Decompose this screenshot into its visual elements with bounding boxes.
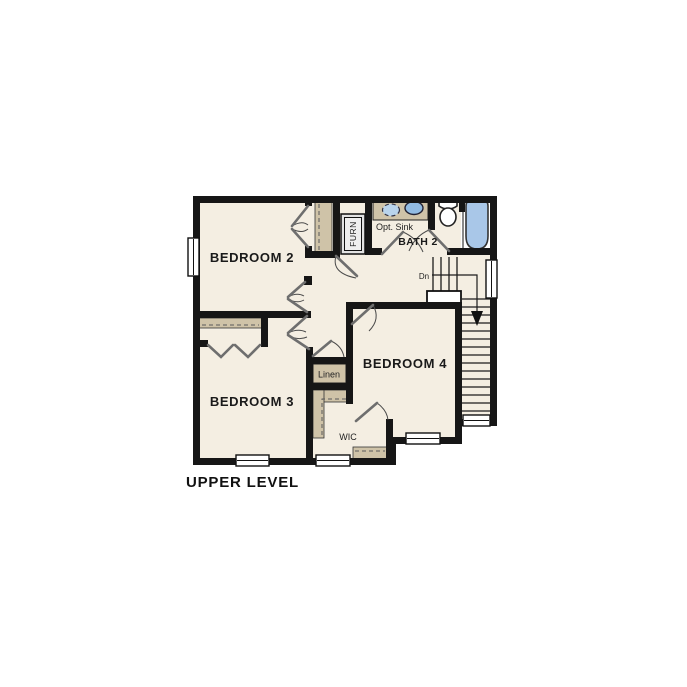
stairwell-window — [486, 260, 497, 298]
bedroom2-window — [188, 238, 199, 276]
floor-plan-page: FURN BEDROOM 2 BEDROOM 3 BEDROOM 4 BATH … — [0, 0, 687, 687]
bedroom4-window — [406, 433, 440, 444]
linen-label: Linen — [318, 370, 340, 380]
dn-label: Dn — [419, 272, 429, 281]
stair-bottom-window — [463, 415, 490, 426]
bedroom3-label: BEDROOM 3 — [210, 394, 294, 409]
wic-window — [316, 455, 350, 466]
wic-label: WIC — [339, 432, 357, 442]
bedroom3-window — [236, 455, 269, 466]
bath2-label: BATH 2 — [398, 236, 438, 248]
furnace-label: FURN — [348, 221, 358, 247]
optional-sink-icon — [383, 204, 400, 216]
chase-closet — [315, 202, 332, 252]
opt-sink-label: Opt. Sink — [376, 222, 414, 232]
bedroom2-label: BEDROOM 2 — [210, 250, 294, 265]
page-title: UPPER LEVEL — [186, 474, 299, 491]
furnace-unit: FURN — [341, 214, 365, 254]
bathtub-icon — [466, 201, 488, 249]
bedroom3-closet-shelf — [199, 318, 262, 328]
floor-plan-svg: FURN BEDROOM 2 BEDROOM 3 BEDROOM 4 BATH … — [0, 0, 687, 687]
bedroom4-label: BEDROOM 4 — [363, 356, 447, 371]
sink-icon — [405, 202, 423, 215]
